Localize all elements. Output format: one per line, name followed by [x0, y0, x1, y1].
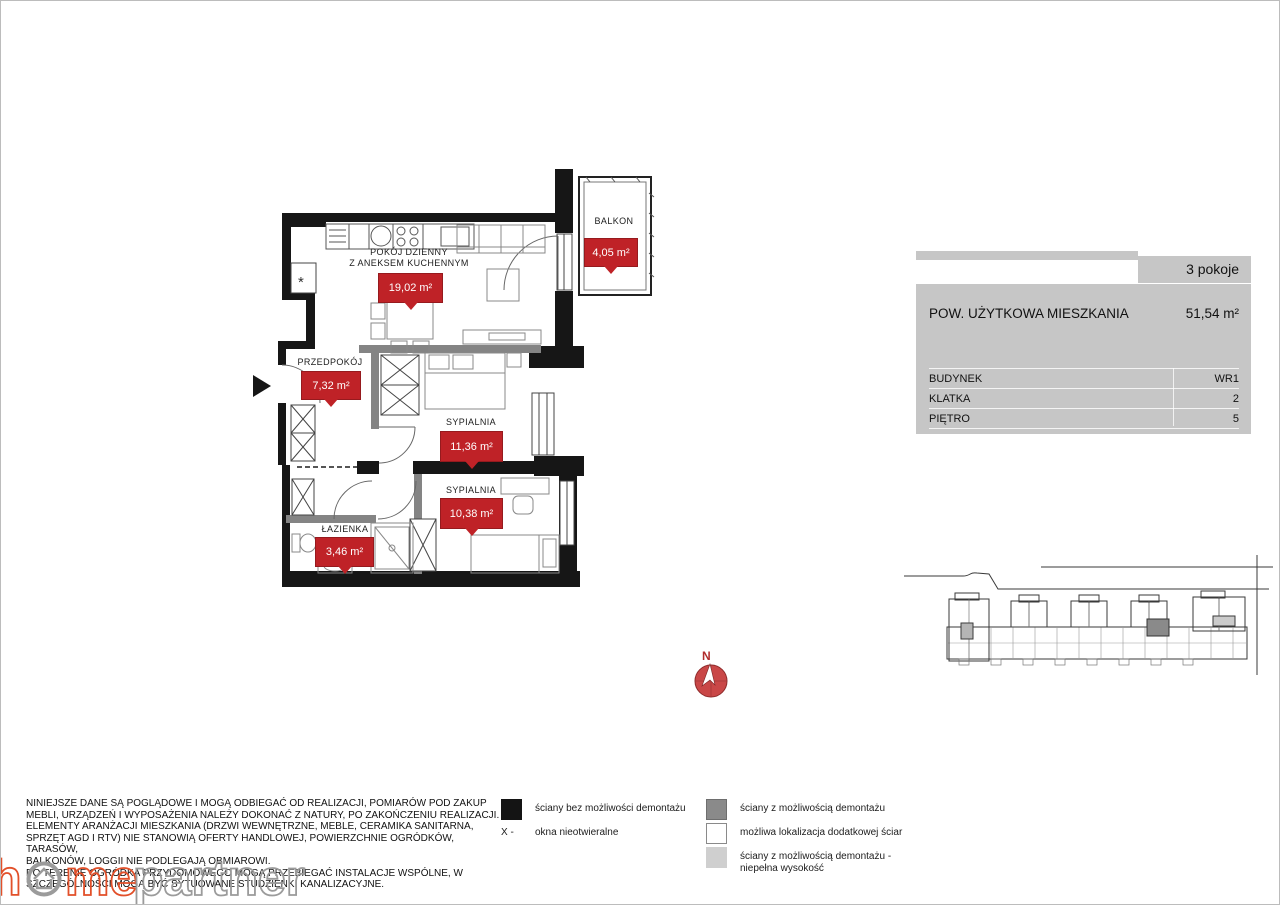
table-row-floor: PIĘTRO 5	[929, 408, 1239, 429]
door-arc-bedroom1	[379, 427, 415, 463]
site-plan	[904, 555, 1273, 675]
chair	[513, 496, 533, 514]
usable-area-value: 51,54 m²	[1186, 306, 1239, 321]
site-unit-light	[961, 623, 973, 639]
nightstand	[507, 353, 521, 367]
legend-label-windows: okna nieotwieralne	[535, 823, 618, 839]
legend-label-low-wall: ściany z możliwością demontażu - niepełn…	[740, 847, 891, 875]
floor-value: 5	[1233, 413, 1239, 425]
area-badge-bedroom2: 10,38 m²	[440, 498, 503, 529]
apartment-info-panel: POW. UŻYTKOWA MIESZKANIA 51,54 m² BUDYNE…	[916, 284, 1251, 434]
sink-icon	[371, 226, 391, 246]
room-label-living: POKÓJ DZIENNY Z ANEKSEM KUCHENNYM	[321, 247, 497, 268]
floor-plan: *	[1, 1, 1280, 905]
building-value: WR1	[1215, 373, 1239, 385]
logo-partner: partner	[133, 851, 305, 905]
legend-left-column: ściany bez możliwości demontażu X - okna…	[501, 799, 686, 842]
legend-swatch-possible-wall	[706, 823, 727, 844]
area-badge-bathroom: 3,46 m²	[315, 537, 374, 567]
panel-top-strip	[916, 251, 1138, 260]
room-label-balcony: BALKON	[579, 216, 649, 227]
tv-bench	[463, 330, 541, 344]
site-unit-light2	[1213, 616, 1235, 626]
legend-label-removable-wall: ściany z możliwością demontażu	[740, 799, 885, 815]
rooms-count-badge: 3 pokoje	[1138, 256, 1251, 283]
legend-swatch-removable-wall	[706, 799, 727, 820]
legend-label-fixed-wall: ściany bez możliwości demontażu	[535, 799, 686, 815]
floor-label: PIĘTRO	[929, 413, 970, 425]
entrance-arrow	[253, 375, 271, 397]
room-label-bathroom: ŁAZIENKA	[315, 524, 375, 535]
balcony	[579, 177, 654, 295]
room-label-bedroom2: SYPIALNIA	[429, 485, 513, 496]
kitchen-counter	[326, 224, 474, 249]
bedroom1-furniture	[425, 353, 521, 409]
door-arc-bedroom2	[378, 481, 416, 519]
stove-burner	[397, 227, 405, 235]
area-badge-hall: 7,32 m²	[301, 371, 361, 400]
window-bedroom1	[532, 393, 554, 455]
room-label-bedroom1: SYPIALNIA	[429, 417, 513, 428]
compass: N	[695, 649, 727, 697]
brand-logo: h me partner	[0, 851, 311, 905]
staircase-label: KLATKA	[929, 393, 970, 405]
area-badge-bedroom1: 11,36 m²	[440, 431, 503, 462]
north-label: N	[702, 649, 711, 663]
legend-swatch-low-wall	[706, 847, 727, 868]
area-badge-living: 19,02 m²	[378, 273, 443, 303]
legend-label-possible-wall: możliwa lokalizacja dodatkowej ściar	[740, 823, 902, 839]
area-badge-balcony: 4,05 m²	[584, 238, 638, 267]
building-label: BUDYNEK	[929, 373, 982, 385]
toilet	[292, 534, 300, 552]
usable-area-label: POW. UŻYTKOWA MIESZKANIA	[929, 306, 1129, 321]
logo-me: me	[65, 851, 137, 905]
floor-plan-sheet: *	[0, 0, 1280, 905]
windows	[532, 234, 574, 545]
room-label-hall: PRZEDPOKÓJ	[292, 357, 368, 368]
house-icon	[29, 864, 60, 895]
door-arc-bathroom	[334, 481, 372, 519]
highlighted-unit	[1147, 619, 1169, 636]
legend-right-column: ściany z możliwością demontażu możliwa l…	[706, 799, 902, 878]
table-row-staircase: KLATKA 2	[929, 388, 1239, 408]
shaft-asterisk: *	[298, 274, 304, 291]
panel-column-divider	[1173, 368, 1174, 426]
bed	[425, 353, 505, 409]
logo-h: h	[0, 851, 22, 905]
staircase-value: 2	[1233, 393, 1239, 405]
coffee-table	[487, 269, 519, 301]
door-arc-balcony	[504, 236, 558, 290]
table-row-building: BUDYNEK WR1	[929, 368, 1239, 388]
